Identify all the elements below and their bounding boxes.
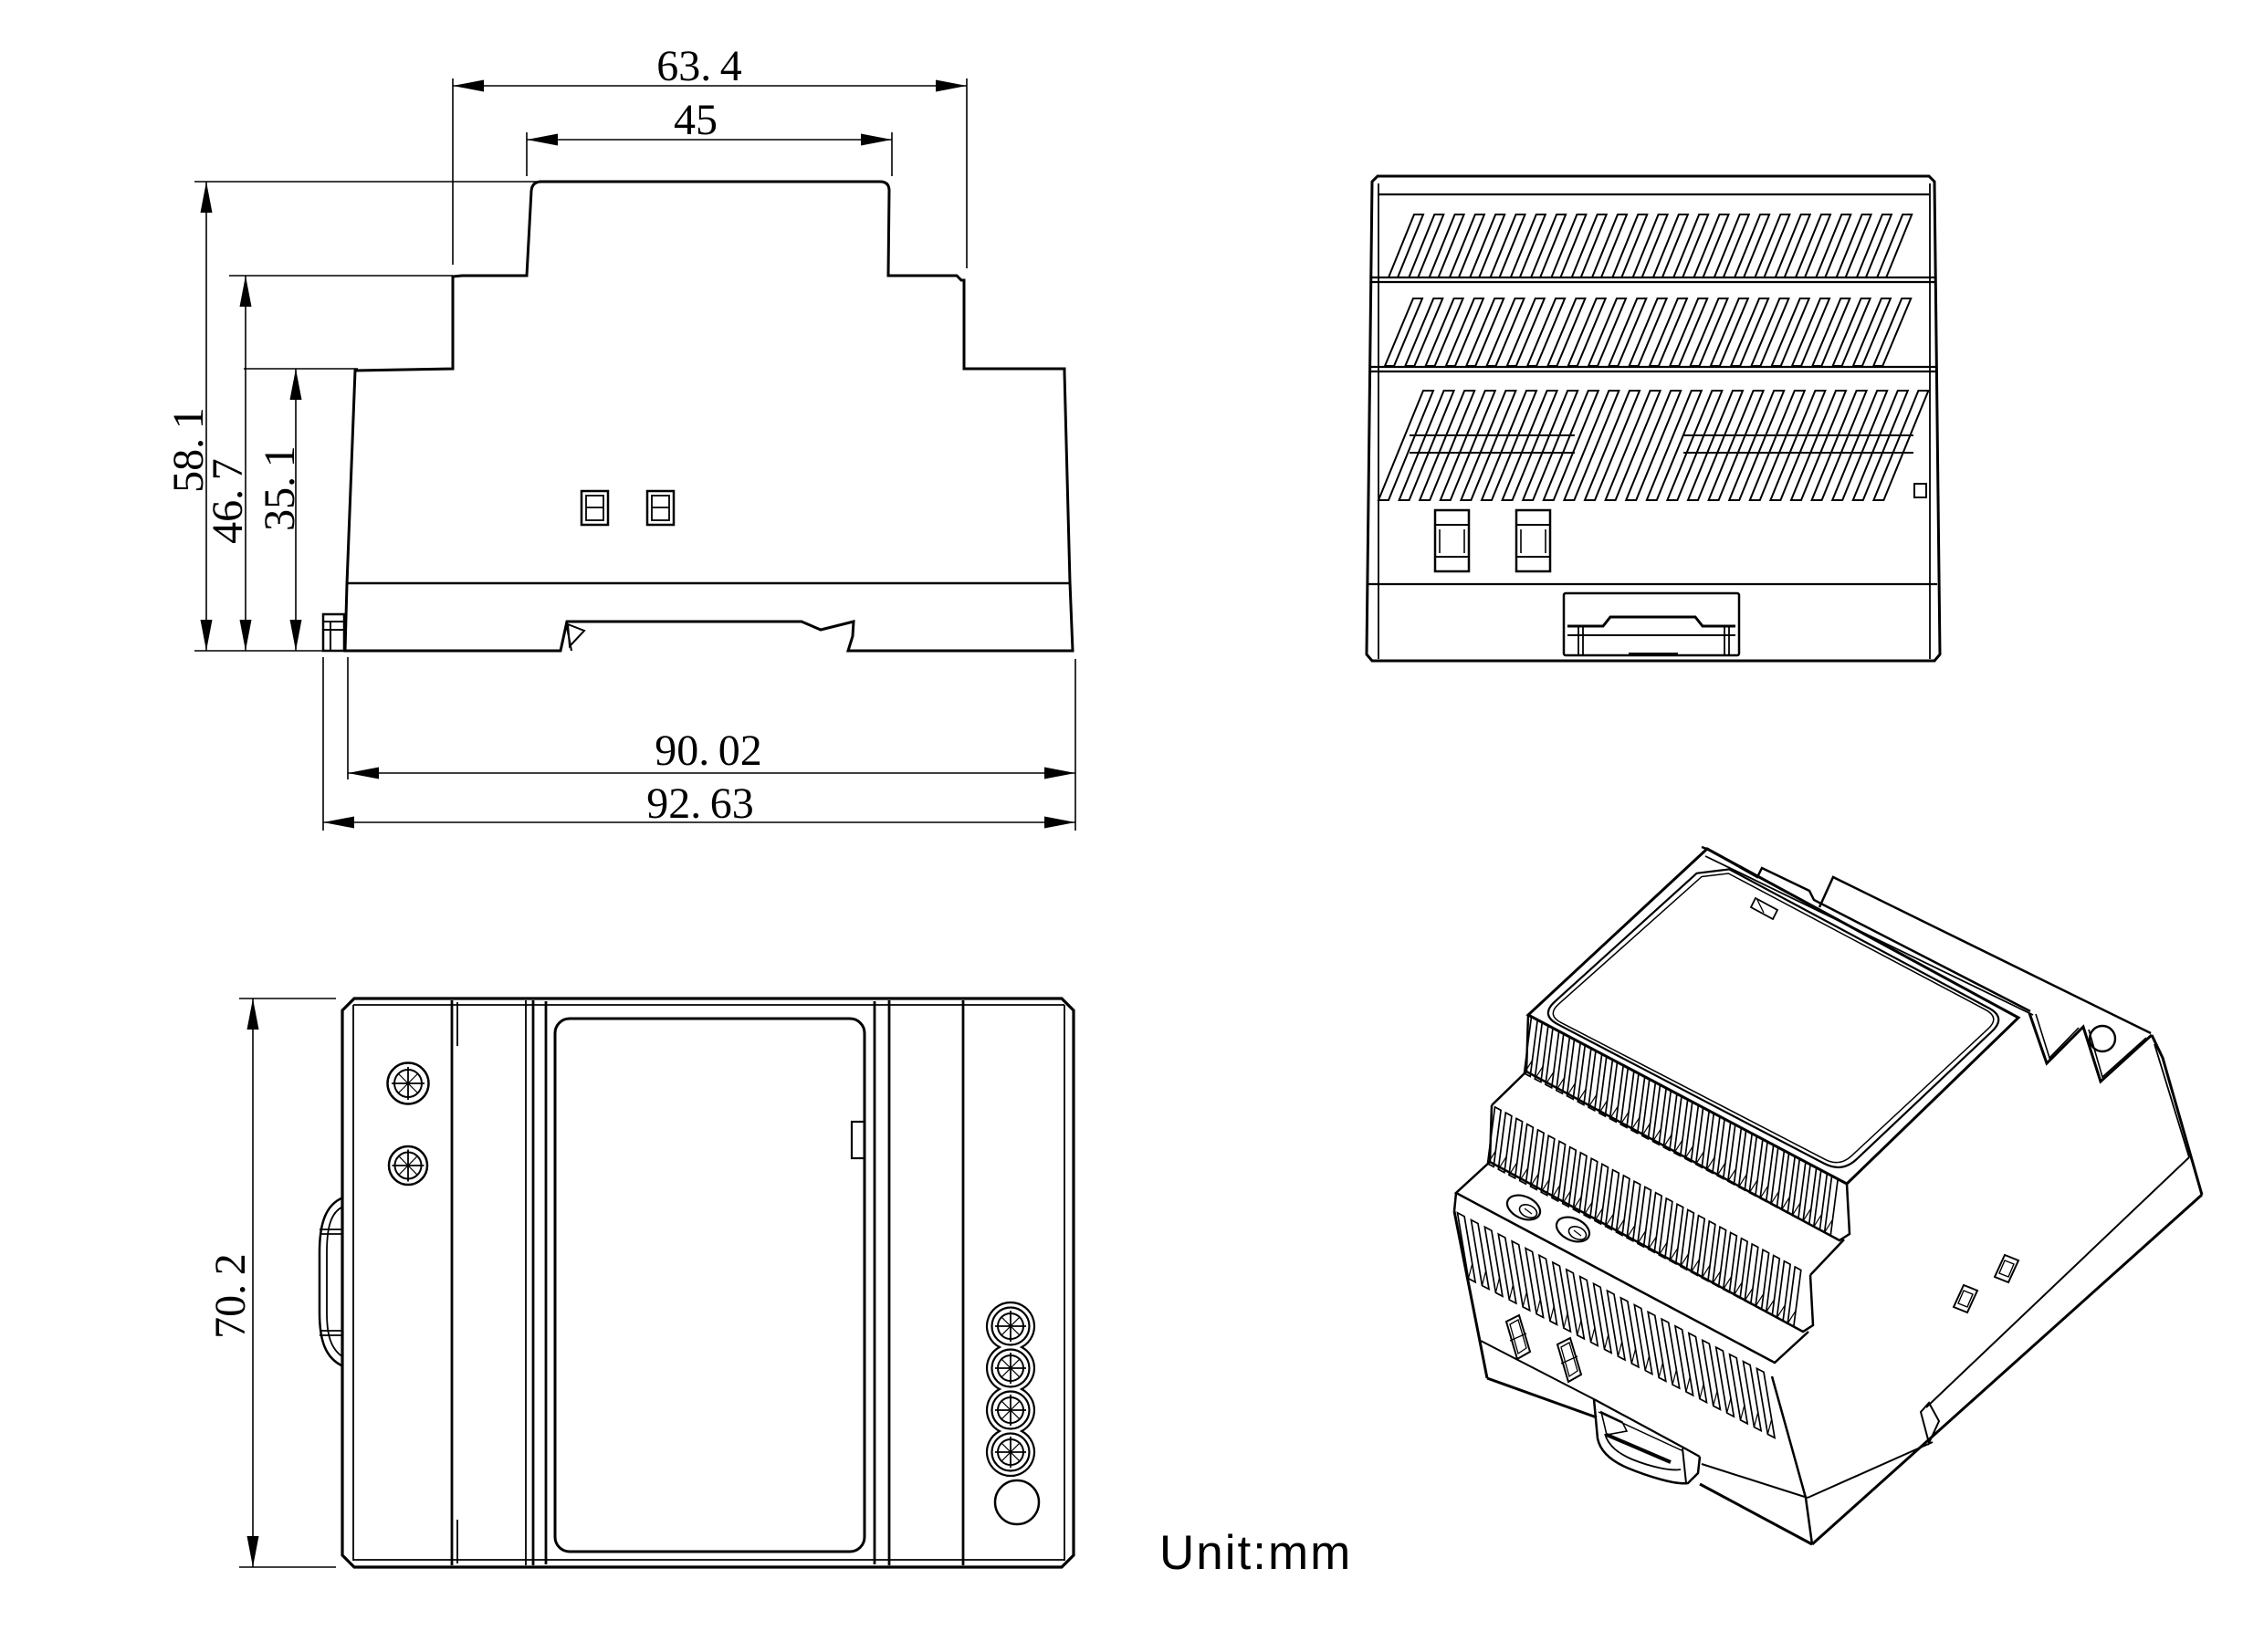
- svg-text:46. 7: 46. 7: [204, 458, 252, 544]
- svg-text:90. 02: 90. 02: [655, 727, 762, 775]
- svg-text:92. 63: 92. 63: [646, 779, 754, 828]
- svg-text:63. 4: 63. 4: [656, 42, 742, 90]
- svg-text:45: 45: [674, 96, 718, 144]
- svg-text:Unit:mm: Unit:mm: [1159, 1526, 1352, 1580]
- svg-text:35. 1: 35. 1: [256, 445, 304, 531]
- svg-text:70. 2: 70. 2: [206, 1253, 255, 1339]
